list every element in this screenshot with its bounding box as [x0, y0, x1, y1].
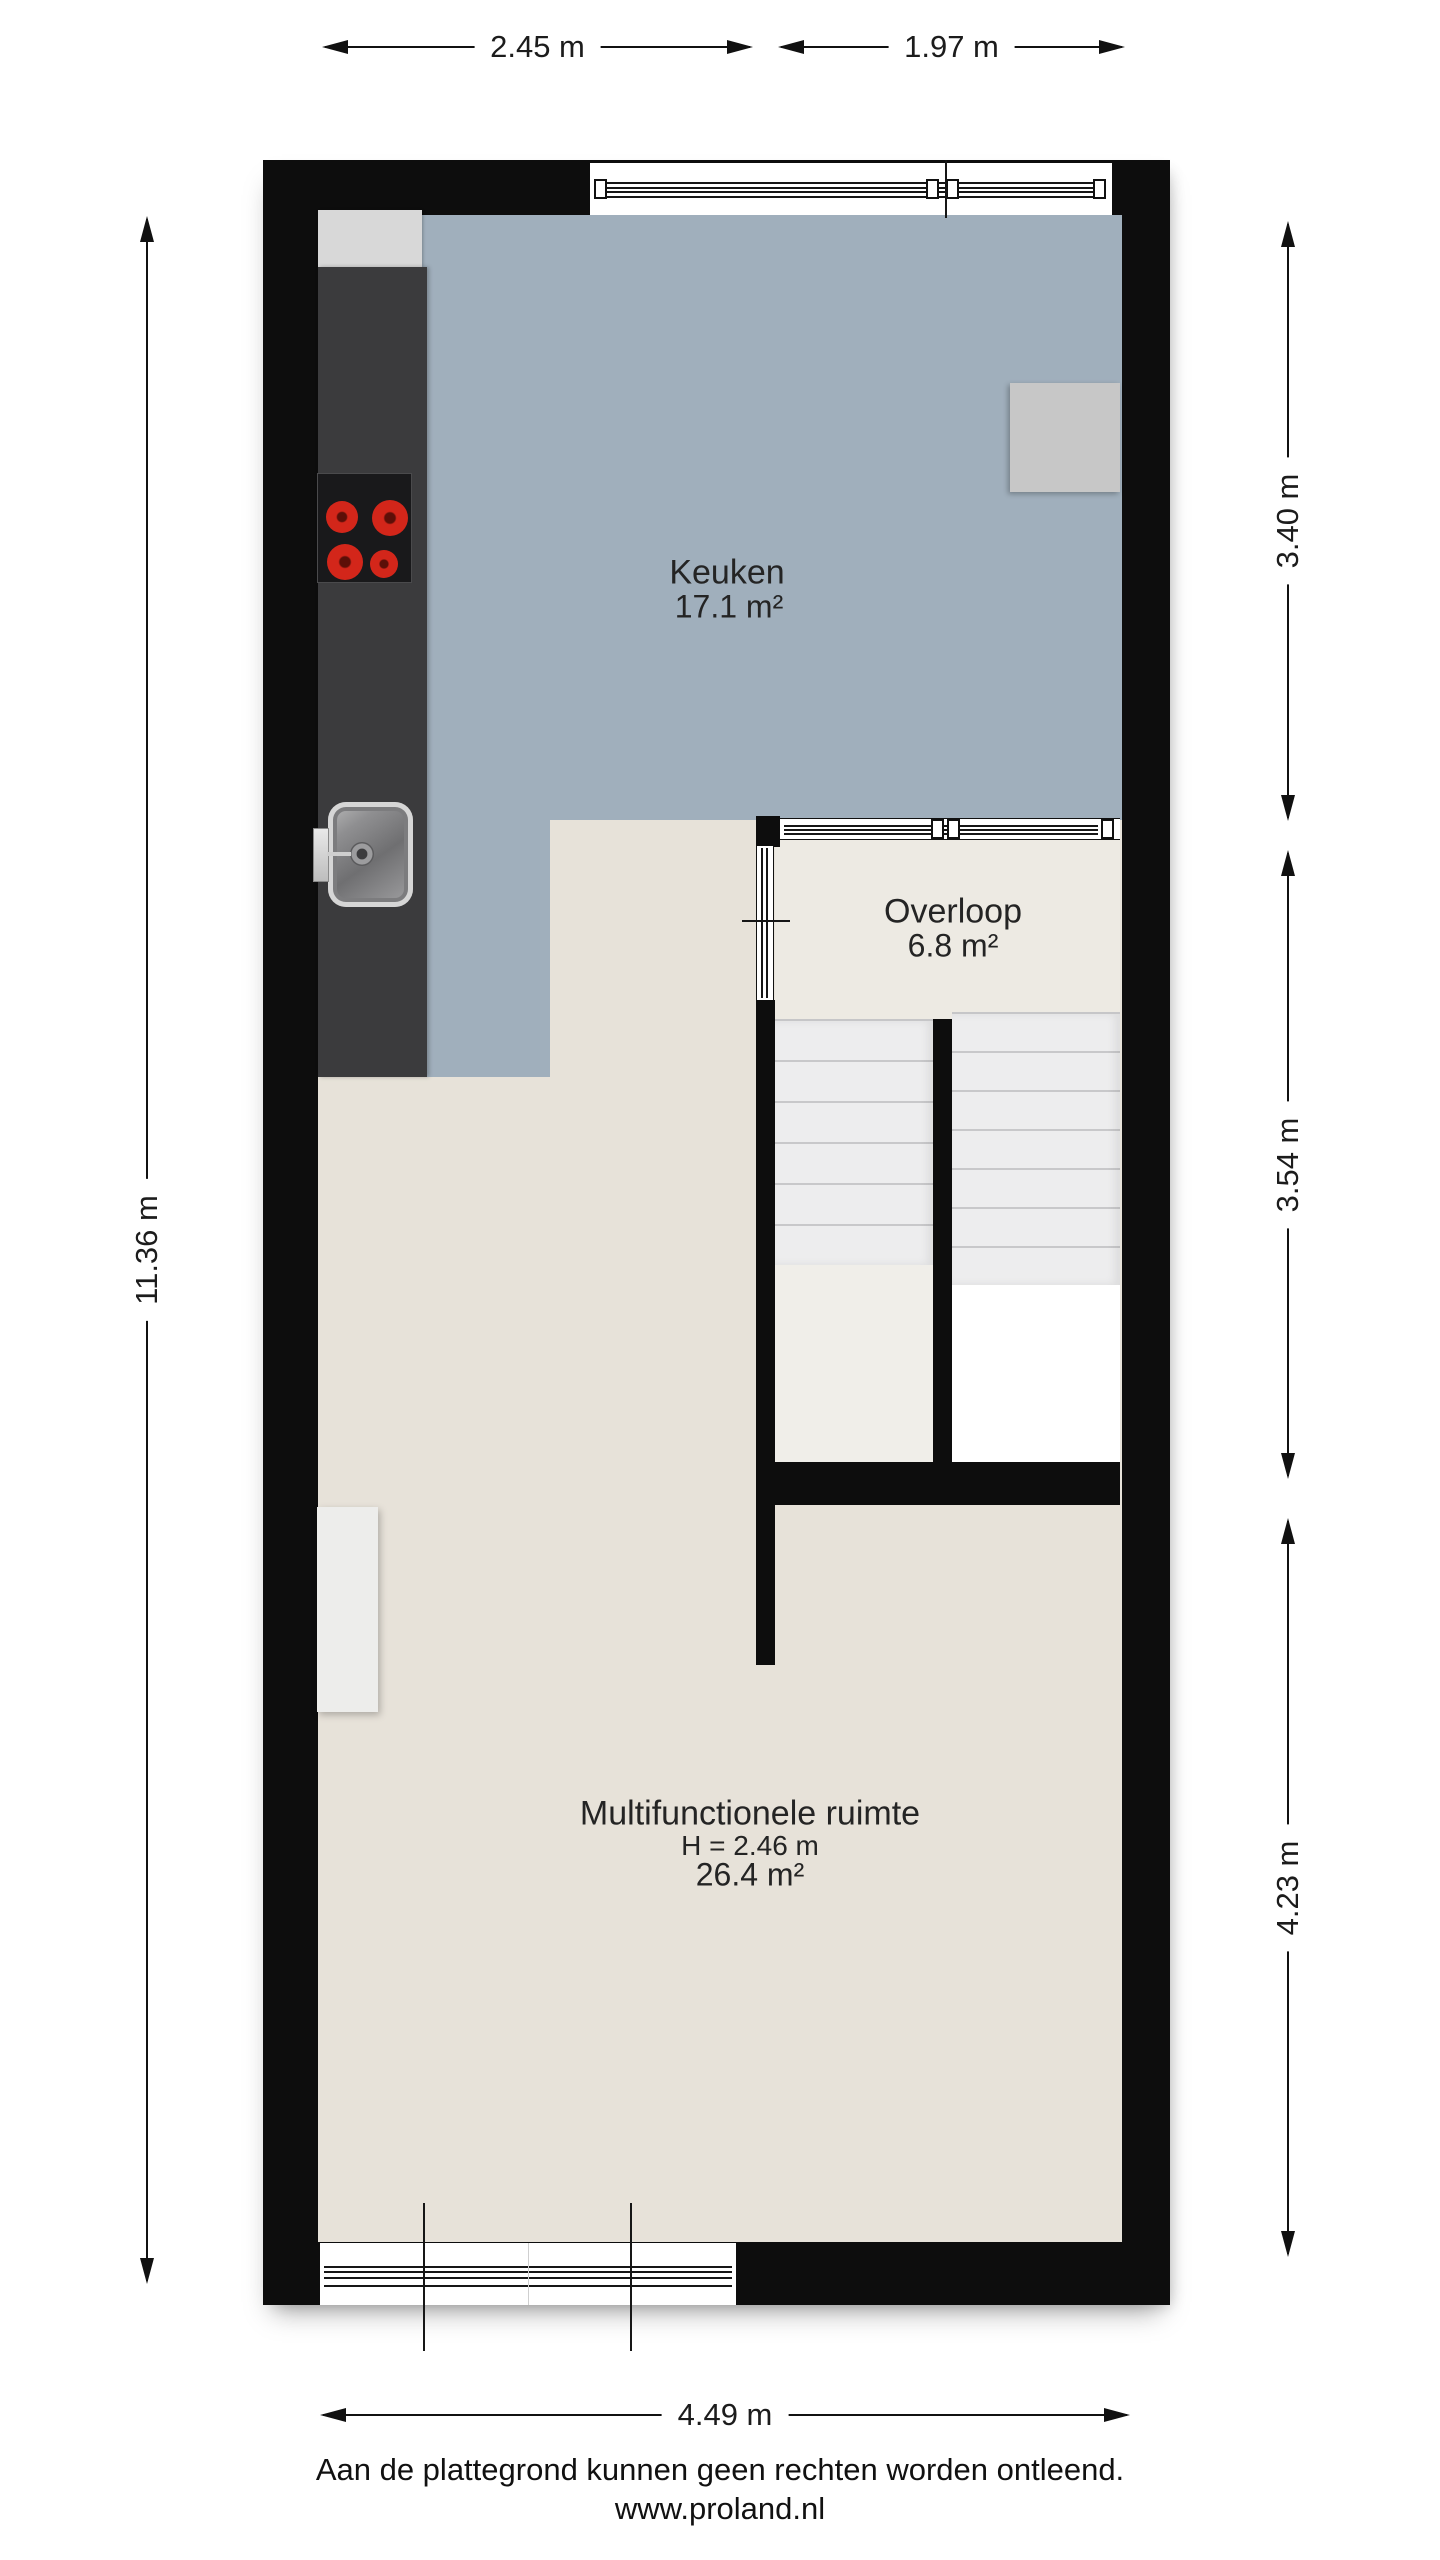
dimension-label: 11.36 m: [130, 1179, 164, 1321]
floor-keuken: [318, 215, 1122, 820]
room-area-multifunctionele-ruimte: 26.4 m²: [696, 1857, 804, 1894]
window-end-cap: [1093, 179, 1106, 199]
kitchen-counter: [318, 267, 427, 1077]
glazing-line: [602, 196, 1098, 198]
dimension-label: 2.45 m: [474, 30, 601, 64]
window-center-mark: [945, 160, 947, 218]
burner: [327, 544, 363, 580]
kitchen-appliance: [1010, 383, 1120, 492]
window-mullion-cap: [946, 179, 959, 199]
dimension-right-middle: 3.54 m: [1277, 850, 1299, 1479]
staircase-landing: [775, 1265, 933, 1462]
window-end-cap: [1101, 819, 1114, 839]
room-area-overloop: 6.8 m²: [908, 928, 999, 965]
footer-website: www.proland.nl: [615, 2491, 825, 2527]
floorplan-page: { "dimensions": { "top_left": "2.45 m", …: [0, 0, 1440, 2560]
dimension-right-top: 3.40 m: [1277, 221, 1299, 821]
stair-wall-bottom: [756, 1462, 1120, 1505]
room-name-overloop: Overloop: [884, 893, 1022, 932]
building-outline: [263, 160, 1170, 2305]
glass-partition-vertical: [756, 846, 774, 1000]
window-mullion-cap: [931, 819, 944, 839]
kitchen-cabinet-top: [318, 210, 422, 267]
glass-partition-horizontal: [756, 818, 1120, 840]
staircase-void: [952, 1285, 1120, 1462]
window-top: [590, 163, 1112, 215]
glazing-line: [766, 848, 768, 998]
window-center-mark: [630, 2203, 632, 2351]
room-name-keuken: Keuken: [669, 554, 784, 593]
window-center-mark: [423, 2203, 425, 2351]
dimension-top-left: 2.45 m: [322, 36, 753, 58]
dimension-label: 3.54 m: [1271, 1101, 1305, 1228]
partition-post: [756, 816, 780, 847]
burner: [370, 550, 398, 578]
faucet-spout: [327, 852, 351, 856]
dimension-label: 1.97 m: [888, 30, 1015, 64]
cabinet: [317, 1507, 378, 1712]
window-divider: [528, 2243, 529, 2305]
room-name-multifunctionele-ruimte: Multifunctionele ruimte: [580, 1795, 920, 1834]
window-mullion-cap: [926, 179, 939, 199]
dimension-right-bottom: 4.23 m: [1277, 1518, 1299, 2257]
dimension-top-right: 1.97 m: [778, 36, 1125, 58]
room-area-keuken: 17.1 m²: [675, 589, 783, 626]
sink-drain: [350, 842, 374, 866]
glazing-line: [602, 187, 1098, 189]
dimension-label: 4.49 m: [662, 2398, 789, 2432]
window-end-cap: [594, 179, 607, 199]
dimension-bottom: 4.49 m: [320, 2404, 1130, 2426]
staircase-left-flight: [775, 1019, 933, 1265]
burner: [372, 500, 408, 536]
glazing-line: [602, 191, 1098, 193]
dimension-left: 11.36 m: [136, 216, 158, 2284]
stair-wall-left: [756, 1000, 775, 1665]
glazing-line: [602, 182, 1098, 184]
window-center-mark: [742, 920, 790, 922]
staircase-right-flight: [952, 1012, 1120, 1285]
stair-wall-center: [933, 1019, 952, 1462]
dimension-label: 4.23 m: [1271, 1824, 1305, 1951]
window-mullion-cap: [947, 819, 960, 839]
cooktop: [317, 473, 412, 583]
footer-disclaimer: Aan de plattegrond kunnen geen rechten w…: [316, 2452, 1124, 2488]
burner: [326, 501, 358, 533]
glazing-line: [761, 848, 763, 998]
window-bottom: [320, 2243, 736, 2305]
dimension-label: 3.40 m: [1271, 458, 1305, 585]
